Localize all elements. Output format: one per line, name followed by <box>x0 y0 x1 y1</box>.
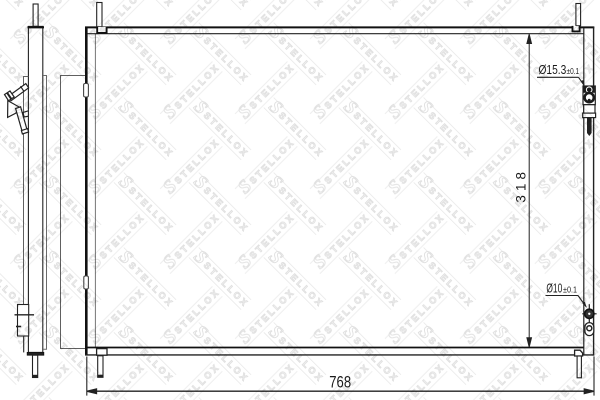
svg-text:Ø10: Ø10 <box>546 282 562 296</box>
svg-text:±0.1: ±0.1 <box>563 285 577 295</box>
